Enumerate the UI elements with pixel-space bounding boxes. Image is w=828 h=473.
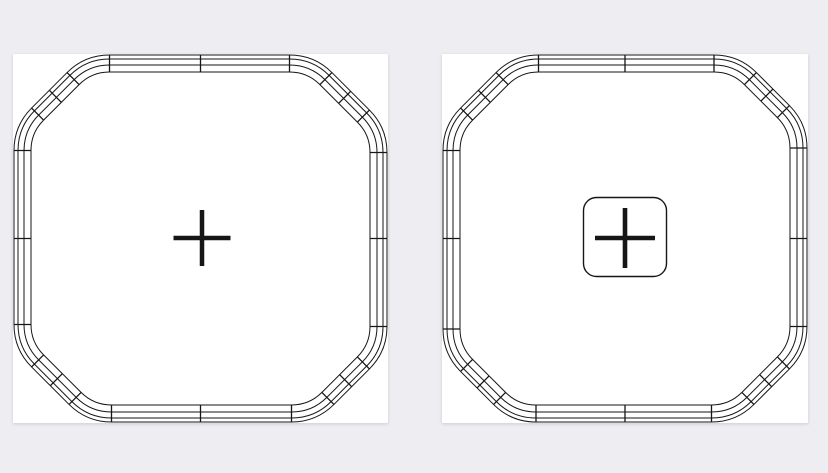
track-plan-panel-right[interactable] [442, 54, 808, 423]
track-loop-drawing [442, 54, 808, 423]
track-loop-drawing [13, 54, 388, 423]
plus-crosshair-icon [174, 210, 231, 266]
center-crosshair-icon [174, 210, 231, 266]
track-plan-panel-left[interactable] [13, 54, 388, 423]
workspace-background [0, 0, 828, 473]
center-crosshair-button[interactable] [584, 198, 667, 277]
